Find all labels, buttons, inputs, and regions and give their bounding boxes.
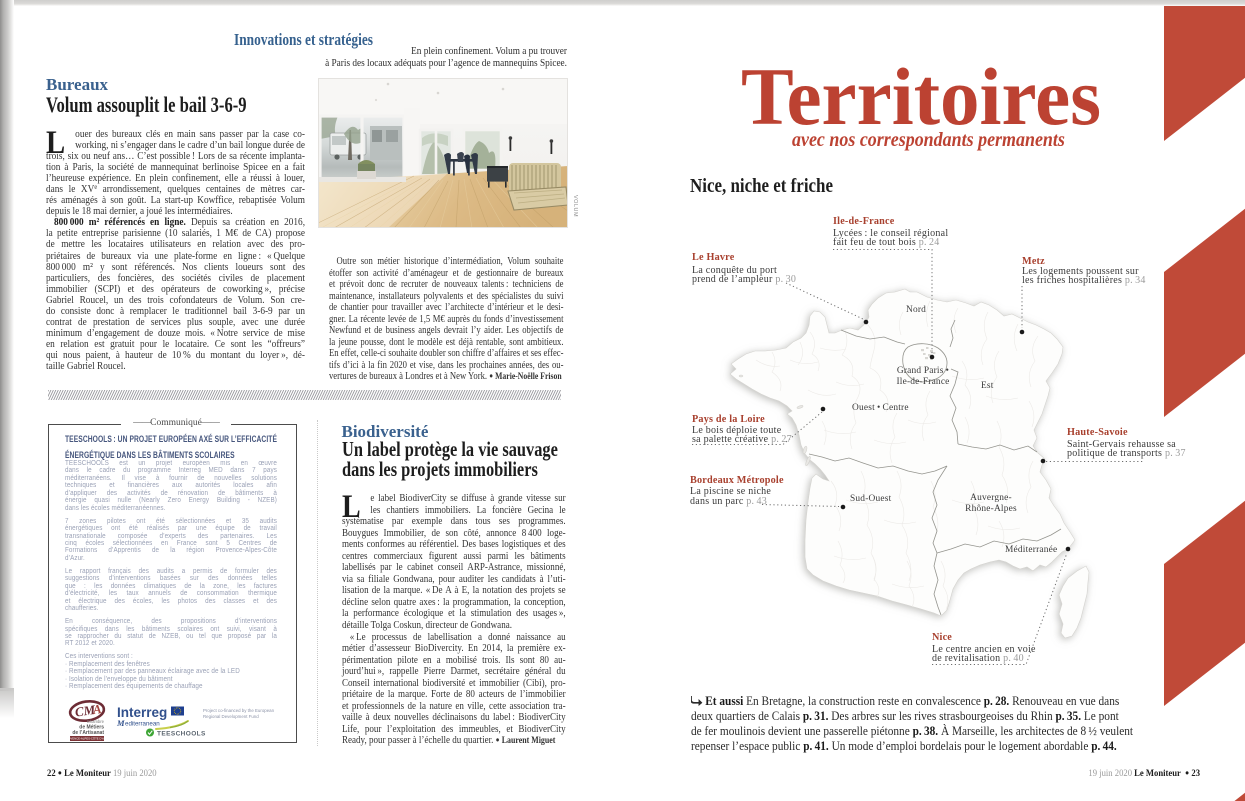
svg-text:Grand Paris •: Grand Paris • [897, 366, 949, 376]
svg-text:Méditerranée: Méditerranée [1005, 545, 1057, 555]
svg-text:Regional Development Fund: Regional Development Fund [203, 714, 259, 719]
svg-text:Sud-Ouest: Sud-Ouest [850, 494, 892, 504]
svg-text:TEESCHOOLS: TEESCHOOLS [157, 731, 206, 738]
svg-text:de l’Artisanat: de l’Artisanat [72, 730, 104, 736]
svg-text:M: M [116, 718, 125, 728]
svg-text:Est: Est [981, 381, 994, 391]
svg-text:Auvergne-: Auvergne- [970, 493, 1012, 503]
svg-text:Ile-de-France: Ile-de-France [896, 377, 949, 387]
svg-text:PROVENCE-ALPES-CÔTE D’AZUR: PROVENCE-ALPES-CÔTE D’AZUR [64, 736, 109, 741]
svg-text:Project co-financed by the Eur: Project co-financed by the European [203, 708, 275, 713]
svg-text:Chambre: Chambre [87, 719, 105, 724]
svg-text:editerranean: editerranean [125, 721, 160, 728]
svg-text:Nord: Nord [906, 305, 926, 315]
svg-text:Ouest • Centre: Ouest • Centre [852, 403, 909, 413]
svg-text:Rhône-Alpes: Rhône-Alpes [965, 504, 1017, 514]
